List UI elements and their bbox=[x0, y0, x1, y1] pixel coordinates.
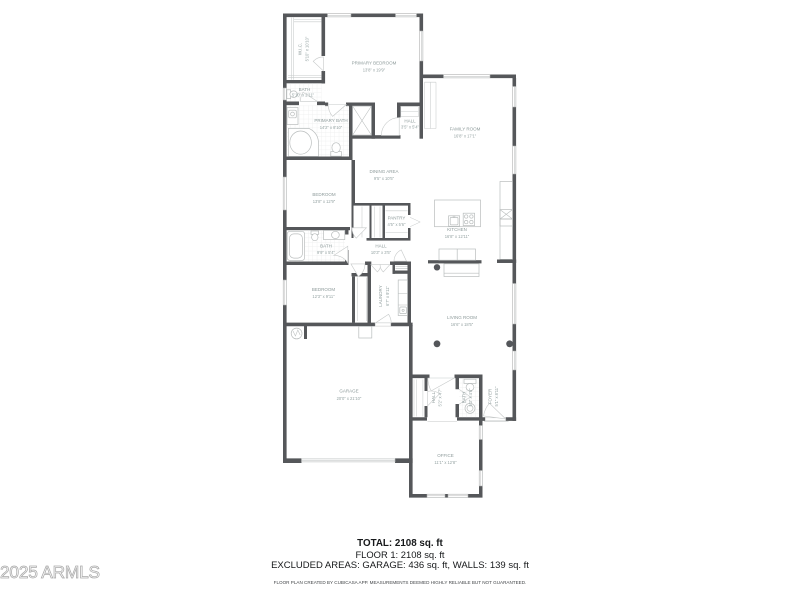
svg-text:16'8" x 17'1": 16'8" x 17'1" bbox=[454, 134, 477, 139]
svg-text:5'10" x 2'11": 5'10" x 2'11" bbox=[292, 93, 315, 98]
svg-text:FAMILY ROOM: FAMILY ROOM bbox=[450, 127, 481, 132]
svg-text:HALL: HALL bbox=[375, 244, 387, 249]
svg-text:9'5" x 10'5": 9'5" x 10'5" bbox=[374, 176, 395, 181]
svg-text:GARAGE: GARAGE bbox=[339, 389, 358, 394]
svg-text:BEDROOM: BEDROOM bbox=[312, 192, 336, 197]
svg-text:OFFICE: OFFICE bbox=[437, 453, 454, 458]
svg-text:LIVING ROOM: LIVING ROOM bbox=[447, 315, 477, 320]
svg-text:16'8" x 12'11": 16'8" x 12'11" bbox=[445, 234, 470, 239]
svg-text:HALL: HALL bbox=[404, 119, 416, 124]
svg-text:3'5" x 5'4": 3'5" x 5'4" bbox=[401, 125, 419, 130]
svg-text:PRIMARY BATH: PRIMARY BATH bbox=[314, 118, 347, 123]
svg-text:13'8" x 12'9": 13'8" x 12'9" bbox=[313, 199, 336, 204]
svg-text:KITCHEN: KITCHEN bbox=[447, 227, 467, 232]
svg-text:6'7" x 9'11": 6'7" x 9'11" bbox=[385, 286, 390, 306]
svg-text:9'9" x 5'4": 9'9" x 5'4" bbox=[317, 250, 335, 255]
svg-text:BATH: BATH bbox=[299, 87, 311, 92]
svg-text:5'1" x 8'11": 5'1" x 8'11" bbox=[494, 386, 499, 406]
svg-text:10'3" x 3'5": 10'3" x 3'5" bbox=[371, 250, 392, 255]
svg-text:W.I.C.: W.I.C. bbox=[298, 43, 303, 55]
svg-text:14'2" x 8'10": 14'2" x 8'10" bbox=[320, 125, 343, 130]
svg-text:DINING AREA: DINING AREA bbox=[369, 169, 398, 174]
svg-text:HALL: HALL bbox=[431, 391, 436, 403]
svg-text:BATH: BATH bbox=[320, 244, 332, 249]
svg-text:PANTRY: PANTRY bbox=[388, 216, 406, 221]
svg-text:BEDROOM: BEDROOM bbox=[312, 287, 336, 292]
svg-text:20'0" x 21'10": 20'0" x 21'10" bbox=[337, 396, 362, 401]
svg-text:PRIMARY BEDROOM: PRIMARY BEDROOM bbox=[352, 61, 397, 66]
svg-text:4'5" x 5'6": 4'5" x 5'6" bbox=[388, 222, 406, 227]
svg-text:12'3" x 9'11": 12'3" x 9'11" bbox=[312, 294, 335, 299]
svg-text:13'8" x 19'9": 13'8" x 19'9" bbox=[363, 68, 386, 73]
svg-text:16'6" x 18'5": 16'6" x 18'5" bbox=[451, 322, 474, 327]
svg-text:FOYER: FOYER bbox=[488, 388, 493, 404]
svg-text:5'2" x 4'7": 5'2" x 4'7" bbox=[438, 388, 443, 406]
svg-text:5'3" x 4'6": 5'3" x 4'6" bbox=[468, 388, 473, 406]
svg-text:5'10" x 10'10": 5'10" x 10'10" bbox=[305, 36, 310, 61]
svg-text:LAUNDRY: LAUNDRY bbox=[378, 285, 383, 306]
svg-text:11'1" x 12'8": 11'1" x 12'8" bbox=[434, 460, 457, 465]
svg-text:BATH: BATH bbox=[462, 392, 467, 404]
